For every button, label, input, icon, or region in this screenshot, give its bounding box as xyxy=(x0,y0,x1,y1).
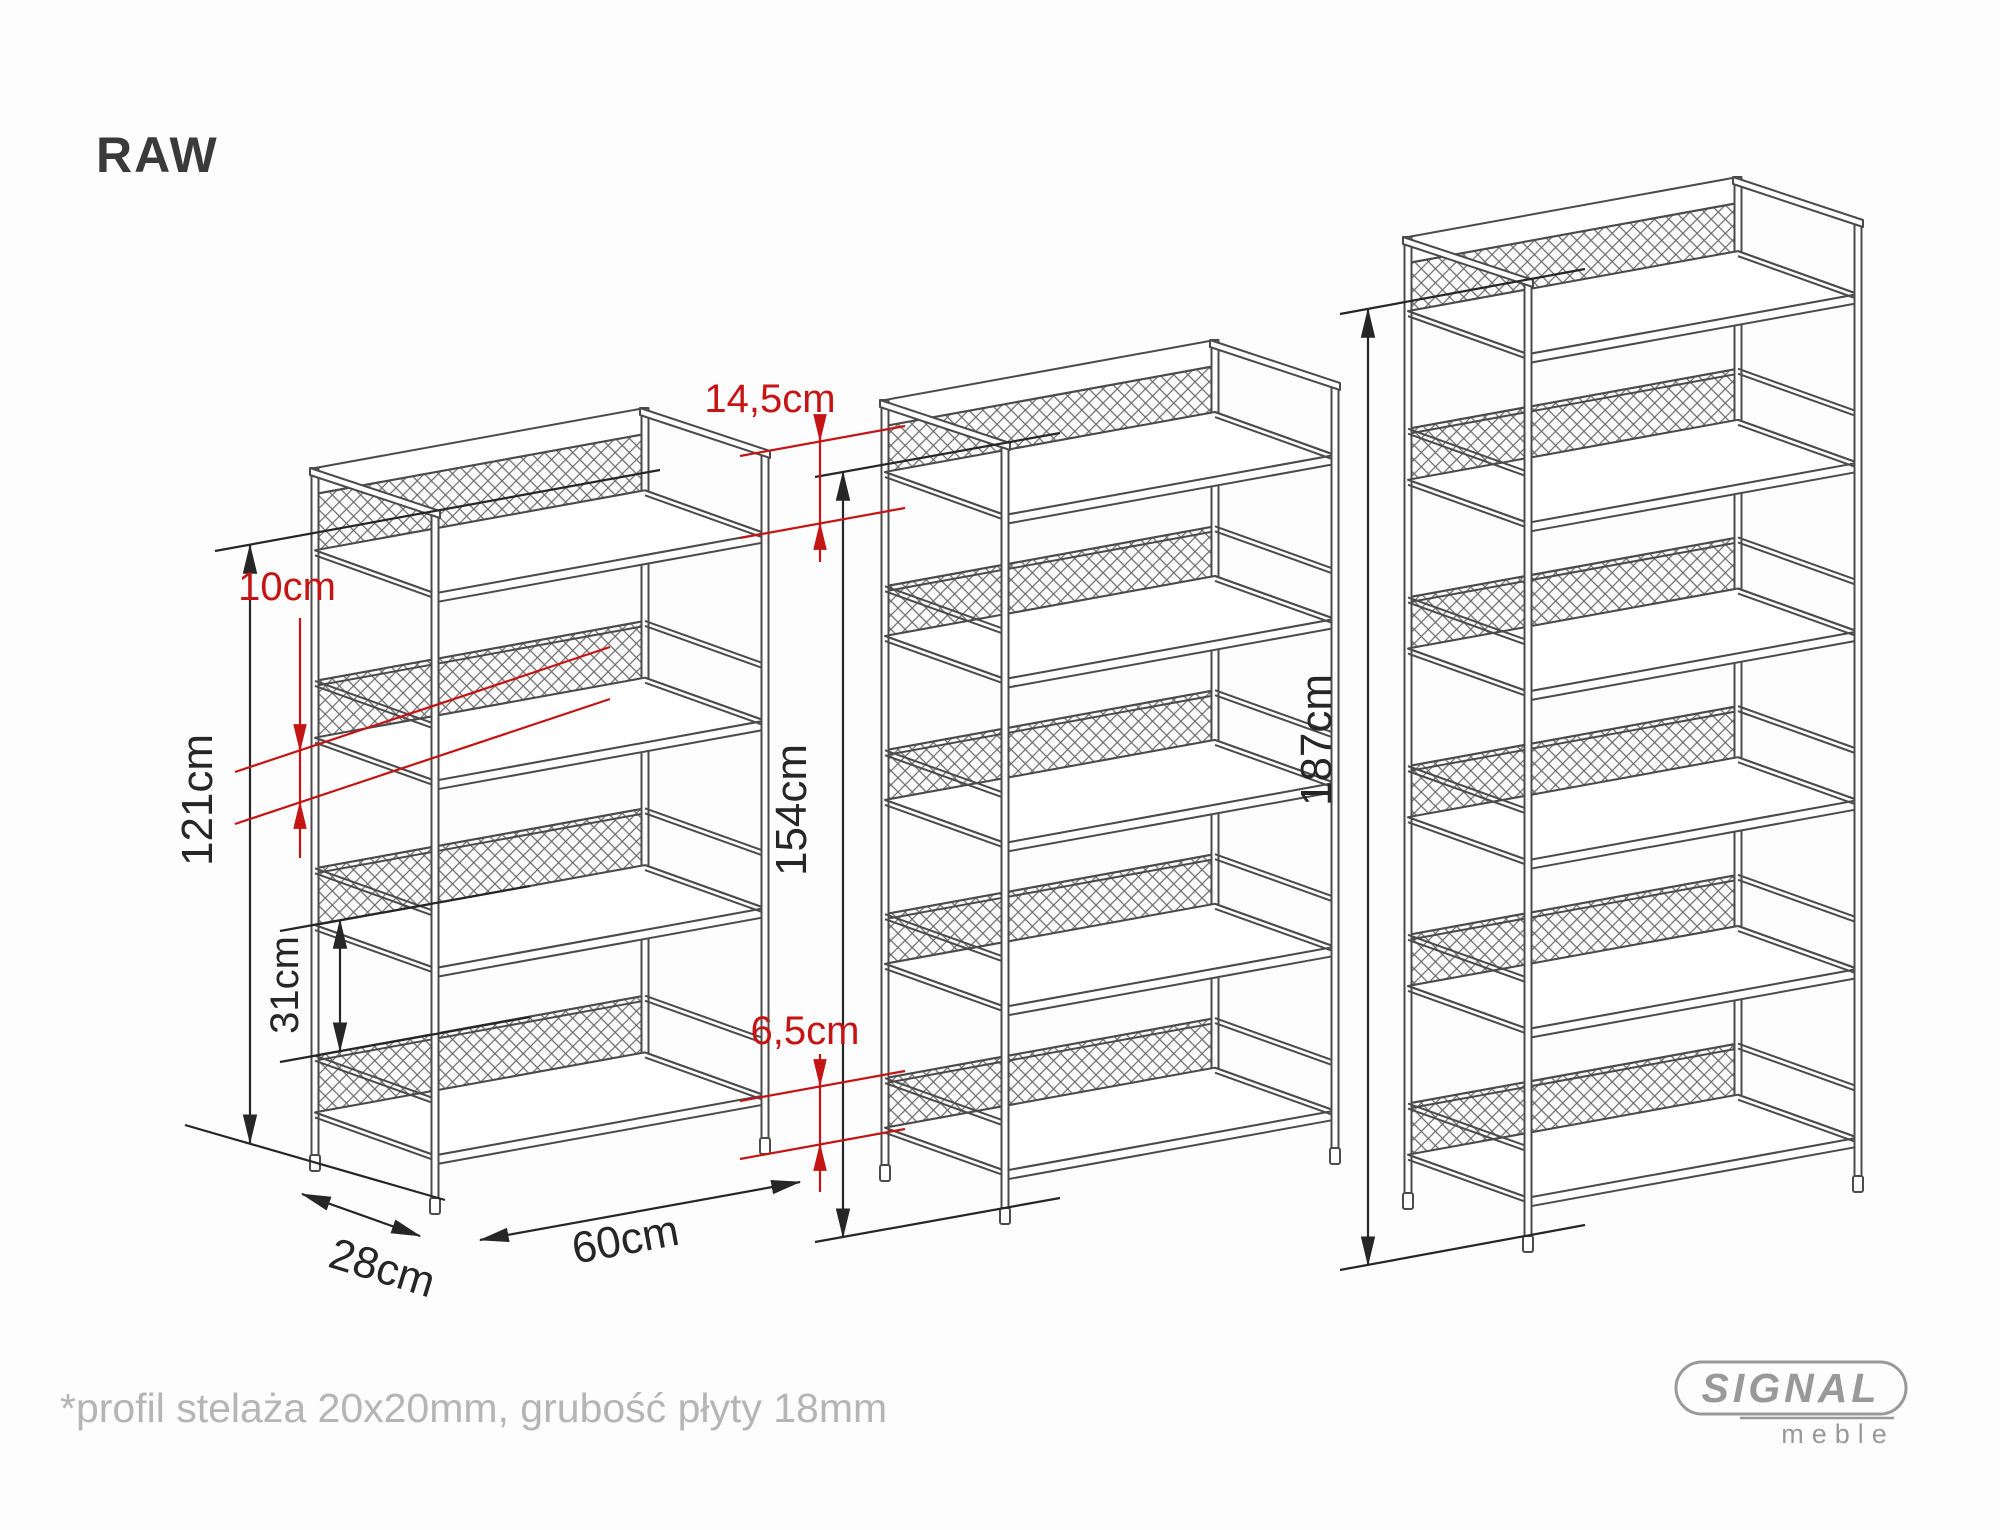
dim-label-60cm: 60cm xyxy=(568,1206,683,1274)
raw-shelving-diagram: RAW 121cm 31cm 28cm 60cm 154cm 187cm xyxy=(0,0,2000,1530)
diagram-canvas: RAW 121cm 31cm 28cm 60cm 154cm 187cm xyxy=(0,0,2000,1530)
dim-ext-line xyxy=(815,1198,1060,1242)
dim-ext-line xyxy=(1340,1225,1585,1270)
shelf-units-layer xyxy=(310,177,1863,1252)
shelf-unit-187cm xyxy=(1403,177,1863,1252)
logo-sub-text: meble xyxy=(1781,1419,1895,1449)
brand-logo: SIGNAL meble xyxy=(1676,1362,1906,1449)
dim-label-154cm: 154cm xyxy=(767,744,816,876)
dim-depth-28cm: 28cm xyxy=(302,1194,441,1307)
dim-label-31cm: 31cm xyxy=(263,936,307,1034)
logo-brand-text: SIGNAL xyxy=(1702,1365,1881,1411)
shelf-unit-121cm xyxy=(310,408,770,1214)
dim-arrow-line xyxy=(302,1194,420,1236)
dim-label-6-5cm: 6,5cm xyxy=(751,1009,860,1053)
dim-label-10cm: 10cm xyxy=(238,565,336,609)
page-title: RAW xyxy=(96,127,219,183)
shelf-unit-154cm xyxy=(880,340,1340,1224)
dim-label-14-5cm: 14,5cm xyxy=(704,377,835,421)
dim-label-121cm: 121cm xyxy=(173,734,222,866)
dim-label-28cm: 28cm xyxy=(324,1229,441,1307)
dim-label-187cm: 187cm xyxy=(1292,674,1341,806)
footnote: *profil stelaża 20x20mm, grubość płyty 1… xyxy=(60,1385,887,1431)
dim-ext-line xyxy=(740,426,905,456)
dim-width-60cm: 60cm xyxy=(480,1182,800,1274)
